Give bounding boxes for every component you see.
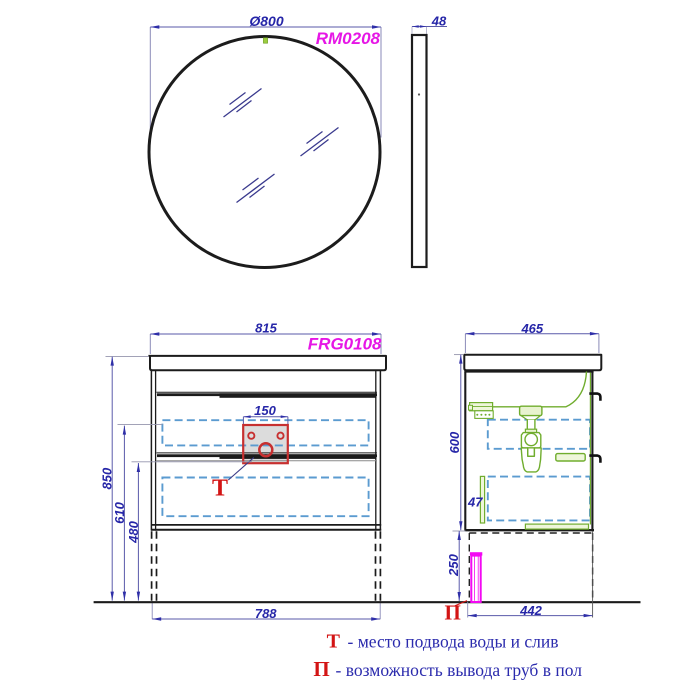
svg-text:П: П [445, 600, 461, 624]
svg-text:47: 47 [467, 495, 483, 510]
svg-text:815: 815 [255, 320, 277, 335]
svg-text:788: 788 [255, 606, 277, 621]
svg-text:- место подвода воды и слив: - место подвода воды и слив [348, 632, 559, 652]
svg-text:150: 150 [254, 403, 276, 418]
svg-text:850: 850 [99, 467, 114, 489]
svg-text:250: 250 [446, 553, 461, 576]
svg-text:Т: Т [327, 631, 341, 653]
svg-text:- возможность вывода труб в по: - возможность вывода труб в пол [336, 660, 583, 680]
svg-text:610: 610 [112, 501, 127, 523]
svg-text:Ø800: Ø800 [249, 13, 283, 29]
svg-text:48: 48 [431, 14, 447, 29]
svg-text:480: 480 [126, 520, 141, 543]
svg-text:FRG0108: FRG0108 [308, 335, 382, 354]
svg-text:600: 600 [447, 431, 462, 453]
svg-text:П: П [313, 657, 329, 681]
svg-text:T: T [212, 476, 228, 502]
svg-text:RM0208: RM0208 [316, 29, 381, 48]
svg-text:442: 442 [519, 603, 542, 618]
svg-text:465: 465 [520, 321, 543, 336]
